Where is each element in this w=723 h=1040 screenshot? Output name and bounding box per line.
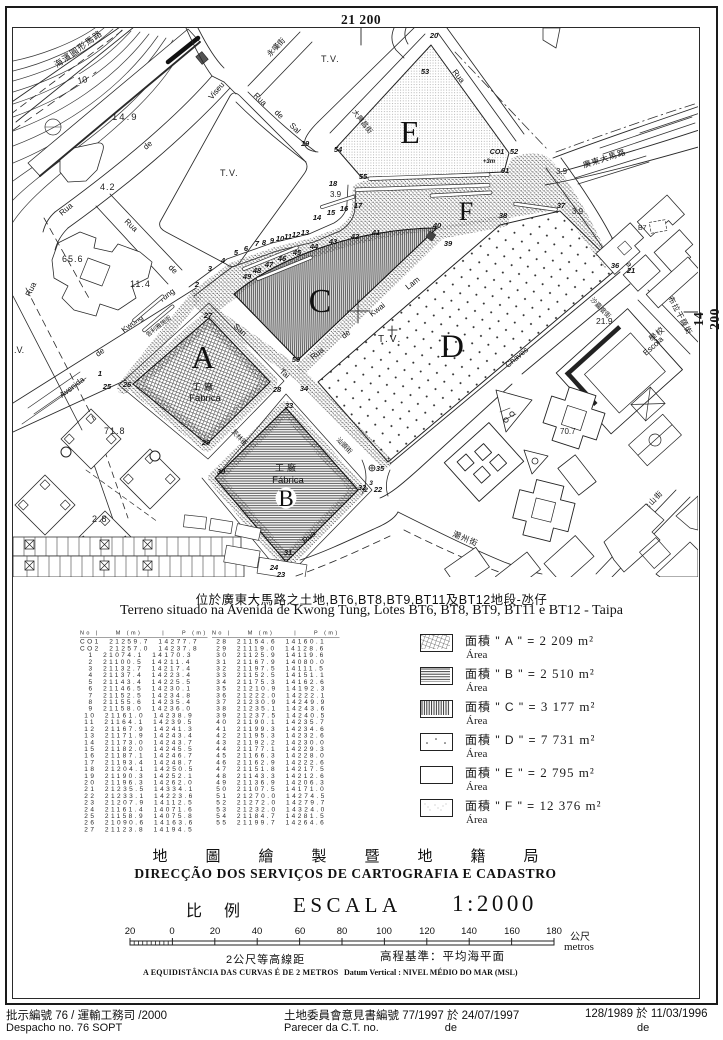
svg-text:43: 43 — [328, 237, 338, 246]
svg-text:35: 35 — [376, 464, 385, 473]
svg-text:54: 54 — [334, 145, 343, 154]
svg-text:+3m: +3m — [483, 159, 496, 165]
svg-text:48: 48 — [252, 266, 262, 275]
svg-text:Rua: Rua — [252, 91, 269, 108]
svg-text:.V.: .V. — [14, 345, 24, 355]
svg-text:14: 14 — [313, 213, 322, 222]
svg-text:31: 31 — [284, 548, 292, 557]
svg-text:49: 49 — [242, 272, 252, 281]
svg-text:36: 36 — [611, 261, 620, 270]
svg-text:16: 16 — [340, 204, 349, 213]
svg-text:E: E — [400, 114, 420, 150]
svg-text:10: 10 — [76, 74, 88, 86]
svg-text:44: 44 — [309, 242, 319, 251]
svg-text:52: 52 — [510, 147, 519, 156]
svg-text:Rua: Rua — [123, 217, 140, 234]
svg-text:15: 15 — [327, 208, 336, 217]
svg-text:2.8: 2.8 — [92, 514, 108, 524]
svg-text:55: 55 — [359, 172, 368, 181]
svg-text:8: 8 — [262, 238, 267, 247]
svg-text:38: 38 — [499, 211, 508, 220]
svg-text:de: de — [94, 346, 107, 359]
svg-text:B7: B7 — [638, 225, 647, 232]
svg-text:14.9: 14.9 — [112, 112, 139, 123]
svg-text:33: 33 — [285, 401, 294, 410]
svg-text:40: 40 — [432, 221, 442, 230]
svg-text:汕頭街: 汕頭街 — [335, 435, 355, 456]
svg-text:23: 23 — [276, 570, 286, 578]
svg-text:4: 4 — [220, 256, 226, 265]
svg-text:A: A — [191, 339, 214, 375]
svg-text:11: 11 — [284, 232, 292, 241]
svg-text:D: D — [440, 329, 464, 365]
svg-text:21.9: 21.9 — [596, 316, 613, 326]
svg-text:Sal: Sal — [288, 121, 303, 136]
svg-text:T.V.: T.V. — [220, 168, 239, 178]
svg-text:Rua: Rua — [24, 280, 39, 298]
svg-text:11.4: 11.4 — [130, 279, 151, 289]
svg-text:工廠: 工廠 — [275, 462, 299, 473]
svg-text:B: B — [278, 486, 293, 511]
svg-text:42: 42 — [350, 232, 360, 241]
svg-text:26: 26 — [122, 380, 132, 389]
svg-text:50: 50 — [292, 355, 301, 364]
svg-text:21: 21 — [626, 266, 635, 275]
svg-text:13: 13 — [301, 228, 310, 237]
svg-text:39: 39 — [444, 239, 453, 248]
svg-text:布拉干薩街: 布拉干薩街 — [666, 294, 695, 336]
svg-text:37: 37 — [557, 201, 566, 210]
svg-text:41: 41 — [371, 228, 380, 237]
svg-text:Viseu: Viseu — [207, 80, 227, 101]
svg-text:工廠: 工廠 — [192, 381, 216, 392]
svg-text:3: 3 — [369, 480, 373, 487]
svg-text:de: de — [142, 139, 155, 152]
svg-text:2: 2 — [363, 487, 368, 494]
svg-text:2: 2 — [194, 280, 200, 289]
svg-text:20: 20 — [429, 31, 439, 40]
svg-text:3: 3 — [208, 264, 213, 273]
svg-text:25: 25 — [102, 382, 112, 391]
svg-text:28: 28 — [272, 385, 282, 394]
svg-text:潮州街: 潮州街 — [451, 529, 480, 549]
svg-text:70.7: 70.7 — [560, 427, 576, 436]
svg-text:3.9: 3.9 — [556, 167, 568, 176]
svg-text:Lam: Lam — [404, 275, 422, 292]
svg-text:T.V.: T.V. — [378, 334, 402, 345]
svg-text:5: 5 — [234, 248, 239, 257]
svg-text:61: 61 — [501, 166, 509, 175]
svg-text:34: 34 — [300, 384, 309, 393]
svg-text:廣東大馬路: 廣東大馬路 — [582, 146, 628, 169]
svg-text:19: 19 — [301, 139, 310, 148]
svg-text:1: 1 — [98, 369, 102, 378]
svg-text:47: 47 — [264, 260, 274, 269]
svg-text:71.8: 71.8 — [104, 426, 126, 436]
svg-text:53: 53 — [421, 67, 430, 76]
svg-text:Fábrica: Fábrica — [189, 393, 221, 404]
svg-text:46: 46 — [277, 254, 287, 263]
svg-text:12: 12 — [292, 230, 301, 239]
svg-text:Rua: Rua — [58, 201, 75, 218]
svg-text:27: 27 — [203, 311, 213, 320]
svg-text:45: 45 — [292, 248, 302, 257]
svg-text:永嘆街: 永嘆街 — [264, 35, 287, 58]
svg-text:Fábrica: Fábrica — [272, 475, 304, 486]
svg-text:29: 29 — [201, 438, 211, 447]
svg-text:F: F — [459, 197, 473, 226]
svg-text:17: 17 — [354, 201, 363, 210]
svg-text:3.9: 3.9 — [330, 190, 342, 199]
svg-text:CO1: CO1 — [490, 149, 505, 156]
svg-text:9: 9 — [270, 236, 275, 245]
svg-text:18: 18 — [329, 179, 338, 188]
svg-text:de: de — [273, 108, 286, 121]
svg-text:C: C — [309, 283, 332, 320]
svg-text:4.2: 4.2 — [100, 182, 116, 192]
svg-text:7: 7 — [255, 239, 260, 248]
svg-text:22: 22 — [373, 485, 383, 494]
svg-text:T.V.: T.V. — [321, 54, 340, 64]
svg-text:30: 30 — [217, 467, 226, 476]
